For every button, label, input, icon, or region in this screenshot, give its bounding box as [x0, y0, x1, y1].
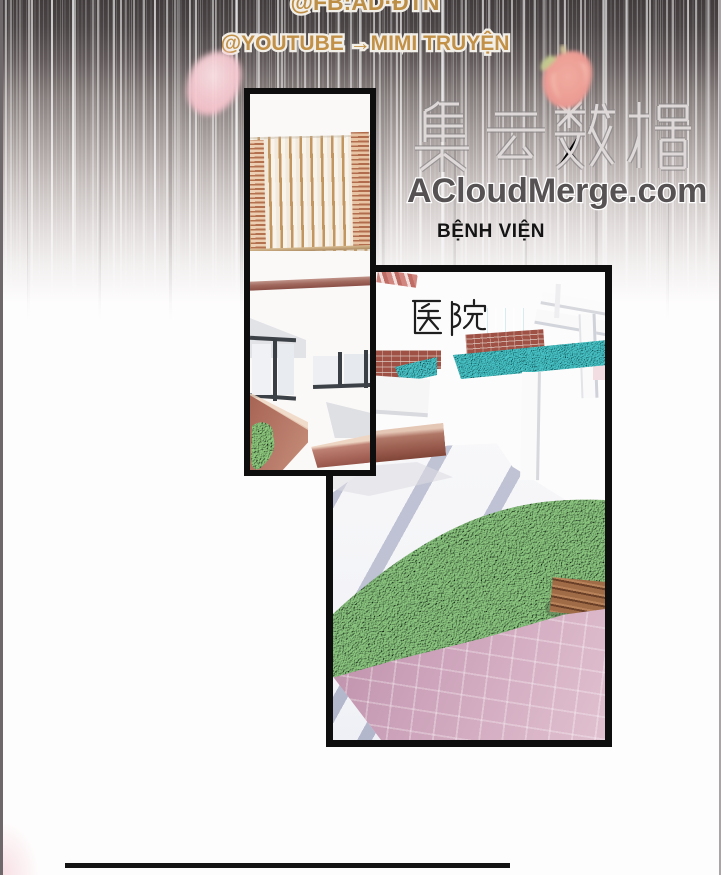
svg-text:@FB:AD·ĐTN: @FB:AD·ĐTN: [291, 0, 440, 15]
svg-text:ACloudMerge.com: ACloudMerge.com: [407, 172, 707, 210]
svg-text:@YOUTUBE →MIMI TRUYỆN: @YOUTUBE →MIMI TRUYỆN: [222, 31, 509, 55]
